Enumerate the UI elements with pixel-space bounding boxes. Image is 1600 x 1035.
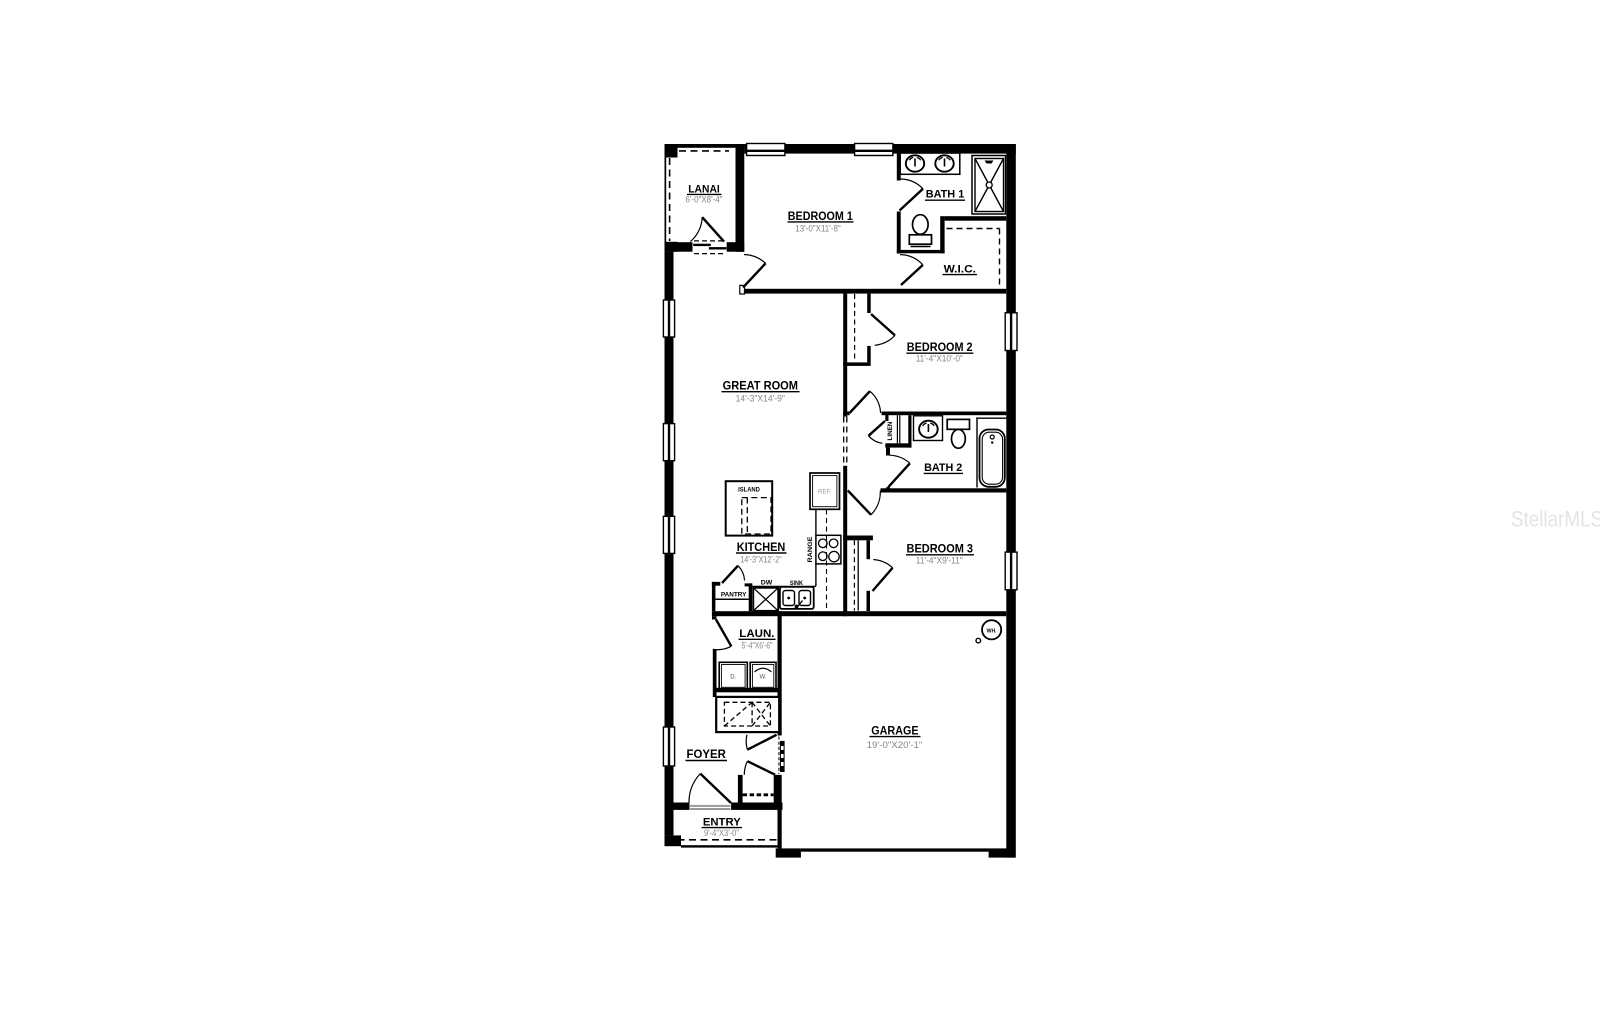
svg-text:ENTRY: ENTRY [703, 816, 741, 828]
svg-text:9'-4"X3'-0": 9'-4"X3'-0" [704, 828, 739, 838]
svg-text:RANGE: RANGE [807, 537, 814, 563]
svg-text:KITCHEN: KITCHEN [737, 540, 786, 554]
svg-text:BEDROOM 2: BEDROOM 2 [907, 340, 973, 354]
svg-text:19'-0"X20'-1": 19'-0"X20'-1" [867, 740, 923, 750]
svg-text:14'-3"X14'-9": 14'-3"X14'-9" [736, 394, 785, 404]
svg-text:W.I.C.: W.I.C. [944, 263, 976, 275]
svg-text:11'-4"X10'-0": 11'-4"X10'-0" [916, 354, 963, 364]
svg-text:LANAI: LANAI [688, 183, 720, 195]
svg-text:13'-0"X11'-8": 13'-0"X11'-8" [795, 224, 841, 234]
svg-text:PANTRY: PANTRY [721, 591, 747, 598]
svg-text:BEDROOM 3: BEDROOM 3 [907, 542, 974, 556]
svg-text:GREAT ROOM: GREAT ROOM [723, 378, 798, 392]
svg-text:LAUN.: LAUN. [739, 628, 774, 640]
svg-text:ISLAND: ISLAND [738, 487, 760, 494]
svg-text:StellarMLS: StellarMLS [1511, 507, 1600, 532]
svg-text:DW: DW [761, 580, 774, 587]
svg-text:6'-0"X8'-4": 6'-0"X8'-4" [686, 195, 723, 205]
svg-text:SINK: SINK [790, 580, 803, 587]
svg-text:GARAGE: GARAGE [871, 723, 918, 737]
svg-text:WH.: WH. [987, 628, 997, 634]
svg-text:BATH 1: BATH 1 [926, 188, 965, 200]
svg-text:W.: W. [760, 675, 767, 681]
svg-text:14'-3"X12'-2": 14'-3"X12'-2" [740, 555, 781, 565]
svg-text:FOYER: FOYER [687, 749, 727, 761]
svg-text:BEDROOM 1: BEDROOM 1 [788, 209, 853, 223]
svg-text:LINEN: LINEN [887, 421, 894, 441]
svg-text:D.: D. [730, 675, 736, 681]
svg-text:5'-4"X6'-6": 5'-4"X6'-6" [742, 640, 773, 650]
svg-text:11'-4"X9'-11": 11'-4"X9'-11" [916, 555, 963, 565]
svg-text:REF.: REF. [818, 489, 832, 496]
svg-text:BATH 2: BATH 2 [924, 462, 962, 474]
